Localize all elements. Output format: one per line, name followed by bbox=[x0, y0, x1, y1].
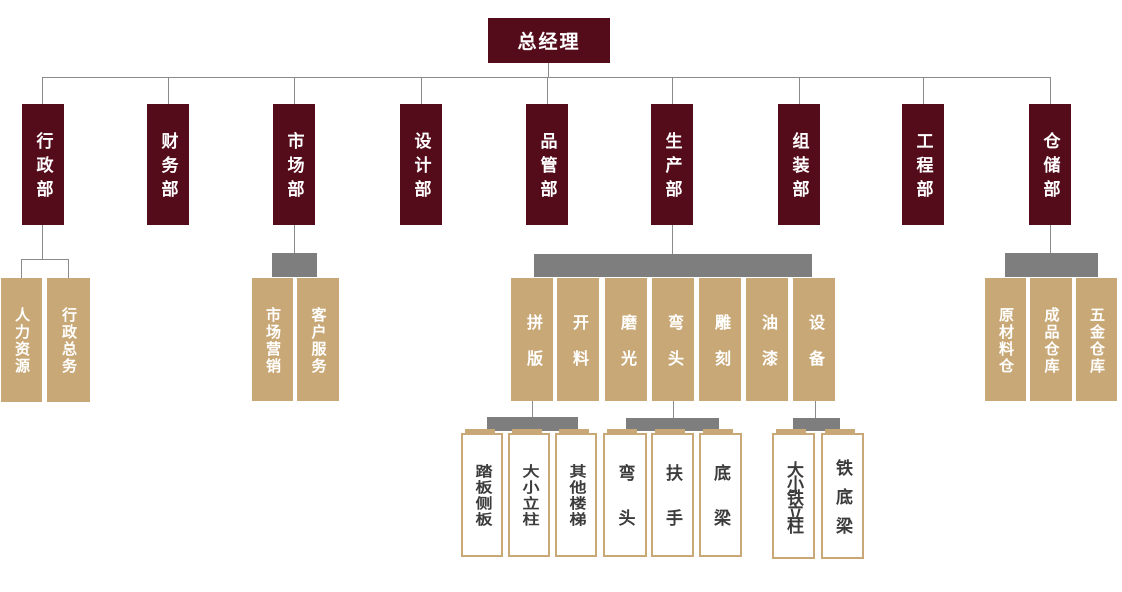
dept-engineering-label: 工程部 bbox=[915, 125, 932, 204]
unit-panel-jointing-label: 拼版 bbox=[524, 294, 540, 386]
connector-line bbox=[532, 401, 533, 418]
connector-bar bbox=[1005, 253, 1098, 277]
dept-quality-control-label: 品管部 bbox=[539, 125, 556, 204]
dept-quality-control: 品管部 bbox=[526, 104, 568, 225]
dept-marketing: 市场部 bbox=[273, 104, 315, 225]
unit-finished-goods-warehouse-label: 成品仓库 bbox=[1044, 305, 1059, 375]
item-handrail-label: 扶手 bbox=[664, 436, 681, 554]
unit-marketing-label: 市场营销 bbox=[265, 305, 280, 375]
unit-painting: 油漆 bbox=[746, 278, 788, 401]
unit-cutting-label: 开料 bbox=[570, 294, 586, 386]
connector-line bbox=[799, 77, 800, 104]
item-tread-side-board-label: 踏板侧板 bbox=[474, 462, 491, 528]
item-elbow-label: 弯头 bbox=[617, 436, 634, 554]
connector-line bbox=[42, 225, 43, 260]
connector-line bbox=[21, 259, 69, 260]
dept-production: 生产部 bbox=[651, 104, 693, 225]
dept-admin: 行政部 bbox=[22, 104, 64, 225]
item-iron-columns-garbled: 大小铁立柱 bbox=[772, 433, 815, 559]
unit-marketing: 市场营销 bbox=[252, 278, 293, 401]
item-iron-columns-garbled-label: 大小铁立柱 bbox=[785, 461, 802, 531]
dept-production-label: 生产部 bbox=[664, 125, 681, 204]
peek-strip bbox=[825, 429, 855, 433]
dept-warehouse: 仓储部 bbox=[1029, 104, 1071, 225]
connector-line bbox=[294, 225, 295, 253]
connector-line bbox=[168, 77, 169, 104]
connector-line bbox=[547, 77, 548, 104]
unit-cutting: 开料 bbox=[557, 278, 599, 401]
connector-line bbox=[673, 401, 674, 419]
unit-painting-label: 油漆 bbox=[759, 294, 775, 386]
unit-customer-service-label: 客户服务 bbox=[311, 305, 326, 375]
unit-finished-goods-warehouse: 成品仓库 bbox=[1030, 278, 1072, 401]
unit-human-resources-label: 人力资源 bbox=[14, 305, 29, 375]
connector-line bbox=[21, 259, 22, 279]
item-other-stairs-label: 其他楼梯 bbox=[568, 462, 585, 528]
unit-admin-general-affairs-label: 行政总务 bbox=[61, 305, 76, 375]
item-elbow: 弯头 bbox=[603, 433, 647, 557]
connector-bar bbox=[534, 254, 812, 277]
unit-human-resources: 人力资源 bbox=[1, 278, 42, 402]
peek-strip bbox=[512, 429, 542, 433]
unit-raw-material-warehouse-label: 原材料仓 bbox=[998, 305, 1013, 375]
peek-strip bbox=[607, 429, 637, 433]
unit-polishing-label: 磨光 bbox=[618, 294, 634, 386]
item-large-small-columns-label: 大小立柱 bbox=[521, 462, 538, 528]
peek-strip bbox=[465, 429, 495, 433]
connector-line bbox=[923, 77, 924, 104]
dept-finance-label: 财务部 bbox=[160, 125, 177, 204]
unit-panel-jointing: 拼版 bbox=[511, 278, 553, 401]
unit-carving-label: 雕刻 bbox=[712, 294, 728, 386]
dept-assembly: 组装部 bbox=[778, 104, 820, 225]
node-general-manager: 总经理 bbox=[488, 18, 610, 63]
dept-design: 设计部 bbox=[400, 104, 442, 225]
connector-line bbox=[548, 62, 549, 78]
unit-customer-service: 客户服务 bbox=[297, 278, 339, 401]
dept-design-label: 设计部 bbox=[413, 125, 430, 204]
connector-line bbox=[672, 225, 673, 254]
peek-strip bbox=[776, 429, 806, 433]
connector-bar bbox=[272, 253, 317, 277]
item-large-small-columns: 大小立柱 bbox=[508, 433, 550, 557]
dept-assembly-label: 组装部 bbox=[791, 125, 808, 204]
item-bottom-beam: 底梁 bbox=[699, 433, 742, 557]
unit-hardware-warehouse: 五金仓库 bbox=[1076, 278, 1117, 401]
unit-raw-material-warehouse: 原材料仓 bbox=[985, 278, 1026, 401]
item-handrail: 扶手 bbox=[651, 433, 694, 557]
dept-warehouse-label: 仓储部 bbox=[1042, 125, 1059, 204]
item-iron-bottom-beam-label: 铁底梁 bbox=[834, 447, 851, 546]
peek-strip bbox=[703, 429, 733, 433]
item-iron-bottom-beam: 铁底梁 bbox=[821, 433, 864, 559]
unit-equipment-label: 设备 bbox=[806, 294, 822, 386]
dept-admin-label: 行政部 bbox=[35, 125, 52, 204]
connector-line bbox=[672, 77, 673, 104]
item-bottom-beam-label: 底梁 bbox=[712, 436, 729, 554]
dept-finance: 财务部 bbox=[147, 104, 189, 225]
dept-engineering: 工程部 bbox=[902, 104, 944, 225]
unit-elbow-label: 弯头 bbox=[665, 294, 681, 386]
org-chart: 总经理 行政部 财务部 市场部 设计部 品管部 生产部 组装部 工程部 仓储部 … bbox=[0, 0, 1122, 592]
connector-line bbox=[1050, 225, 1051, 253]
node-general-manager-label: 总经理 bbox=[517, 27, 580, 54]
connector-line bbox=[294, 77, 295, 104]
connector-line bbox=[68, 259, 69, 279]
unit-polishing: 磨光 bbox=[605, 278, 647, 401]
unit-elbow: 弯头 bbox=[652, 278, 694, 401]
peek-strip bbox=[655, 429, 685, 433]
unit-equipment: 设备 bbox=[793, 278, 835, 401]
unit-hardware-warehouse-label: 五金仓库 bbox=[1089, 305, 1104, 375]
connector-line bbox=[1050, 77, 1051, 104]
item-other-stairs: 其他楼梯 bbox=[555, 433, 597, 557]
connector-line bbox=[421, 77, 422, 104]
unit-carving: 雕刻 bbox=[699, 278, 741, 401]
unit-admin-general-affairs: 行政总务 bbox=[47, 278, 90, 402]
peek-strip bbox=[559, 429, 589, 433]
connector-line bbox=[42, 77, 43, 104]
connector-line bbox=[815, 401, 816, 419]
dept-marketing-label: 市场部 bbox=[286, 125, 303, 204]
item-tread-side-board: 踏板侧板 bbox=[461, 433, 503, 557]
